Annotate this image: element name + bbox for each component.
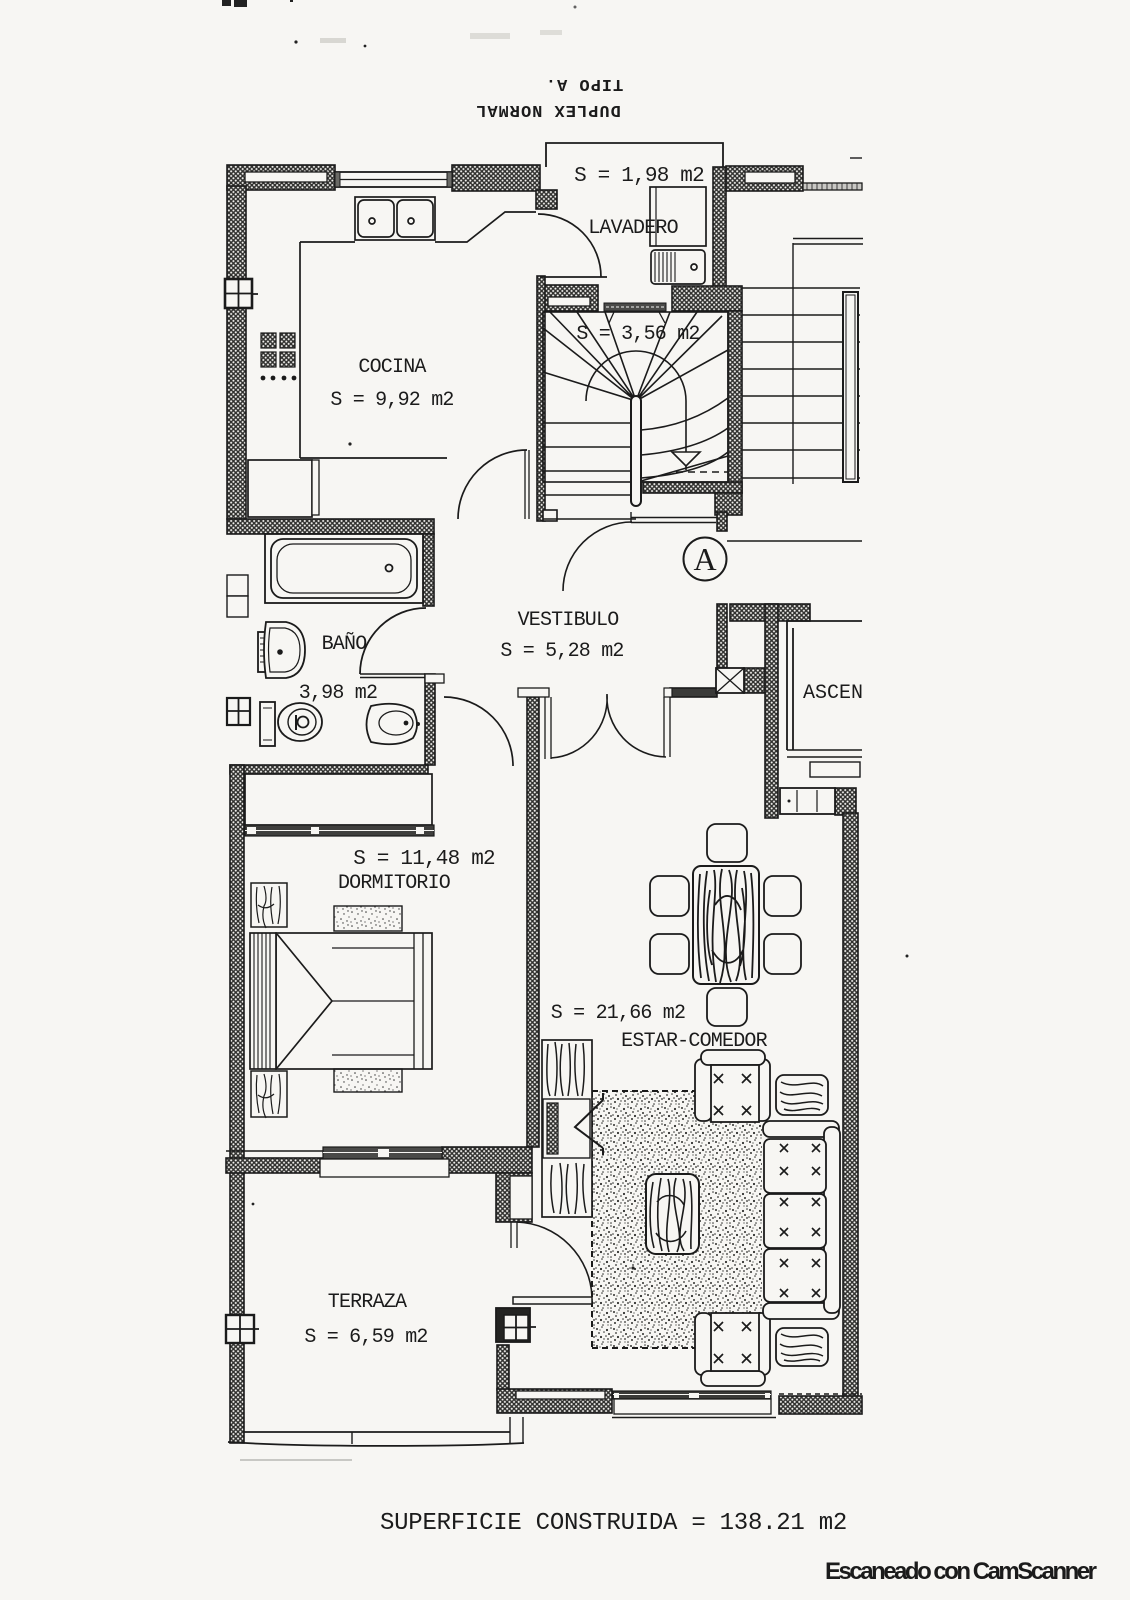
svg-text:A: A <box>693 541 716 577</box>
svg-text:LAVADERO: LAVADERO <box>588 217 678 240</box>
svg-text:Escaneado con CamScanner: Escaneado con CamScanner <box>825 1558 1097 1585</box>
svg-text:ASCEN: ASCEN <box>803 682 863 705</box>
svg-text:ESTAR-COMEDOR: ESTAR-COMEDOR <box>621 1030 767 1053</box>
svg-text:S = 9,92 m2: S = 9,92 m2 <box>330 389 453 412</box>
svg-text:VESTIBULO: VESTIBULO <box>518 609 619 632</box>
svg-text:SUPERFICIE CONSTRUIDA = 138.21: SUPERFICIE CONSTRUIDA = 138.21 m2 <box>380 1510 847 1537</box>
svg-text:S = 21,66 m2: S = 21,66 m2 <box>551 1002 685 1025</box>
svg-text:TERRAZA: TERRAZA <box>328 1291 407 1314</box>
svg-text:S = 5,28 m2: S = 5,28 m2 <box>500 640 623 663</box>
svg-text:S = 6,59 m2: S = 6,59 m2 <box>304 1326 427 1349</box>
svg-text:S = 1,98 m2: S = 1,98 m2 <box>574 165 704 188</box>
svg-text:S = 3,56 m2: S = 3,56 m2 <box>576 323 699 346</box>
svg-text:BAÑO: BAÑO <box>322 631 367 656</box>
svg-text:S = 11,48 m2: S = 11,48 m2 <box>353 848 495 871</box>
svg-text:DORMITORIO: DORMITORIO <box>338 872 450 895</box>
svg-text:3,98 m2: 3,98 m2 <box>299 682 377 705</box>
svg-text:TIPO A.: TIPO A. <box>545 74 623 93</box>
svg-text:DUPLEX NORMAL: DUPLEX NORMAL <box>475 100 621 119</box>
svg-text:COCINA: COCINA <box>358 356 426 379</box>
